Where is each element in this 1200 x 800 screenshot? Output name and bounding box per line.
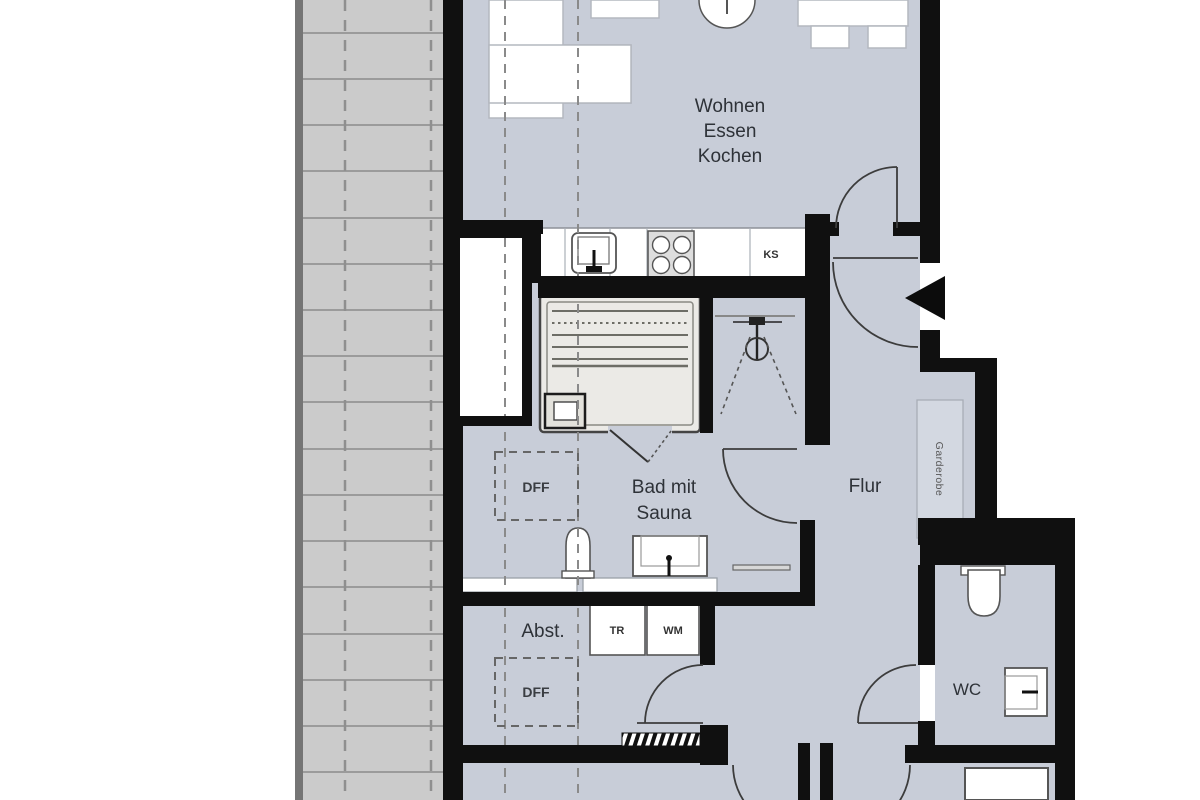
bath-knee-wall <box>452 578 717 592</box>
dining-table <box>798 0 908 26</box>
fridge-label: KS <box>763 249 778 261</box>
wc-sink-icon <box>1005 668 1047 716</box>
roof-window-bath-label: DFF <box>522 479 550 495</box>
towel-radiator <box>733 565 790 570</box>
bathtub <box>965 768 1048 800</box>
washbasin-icon <box>633 536 707 576</box>
bath-label-1: Bad mit <box>632 477 697 498</box>
living-label-3: Kochen <box>698 146 762 167</box>
chair <box>868 26 906 48</box>
chair <box>811 26 849 48</box>
hall-label: Flur <box>849 476 882 497</box>
coffee-table <box>591 0 659 18</box>
storage-label: Abst. <box>521 621 564 642</box>
shaft-box <box>450 228 532 426</box>
appliance-boxes: TR WM <box>590 603 699 655</box>
wc-label: WC <box>953 680 981 699</box>
bath-label-2: Sauna <box>637 503 692 524</box>
terrace-edge <box>295 0 303 800</box>
wardrobe: Garderobe <box>917 400 963 538</box>
sink-icon <box>572 233 616 273</box>
dryer-label: TR <box>610 625 625 637</box>
living-label-1: Wohnen <box>695 96 765 117</box>
stove-icon <box>648 231 694 277</box>
living-label-2: Essen <box>704 121 757 142</box>
washer-label: WM <box>663 625 683 637</box>
terrace <box>295 0 443 800</box>
wardrobe-label: Garderobe <box>933 442 945 497</box>
kitchen-counter: KS <box>538 228 810 278</box>
sauna-door-opening <box>608 426 672 435</box>
threshold-hatch <box>622 733 700 746</box>
floor-plan: KS <box>0 0 1200 800</box>
roof-window-storage-label: DFF <box>522 684 550 700</box>
